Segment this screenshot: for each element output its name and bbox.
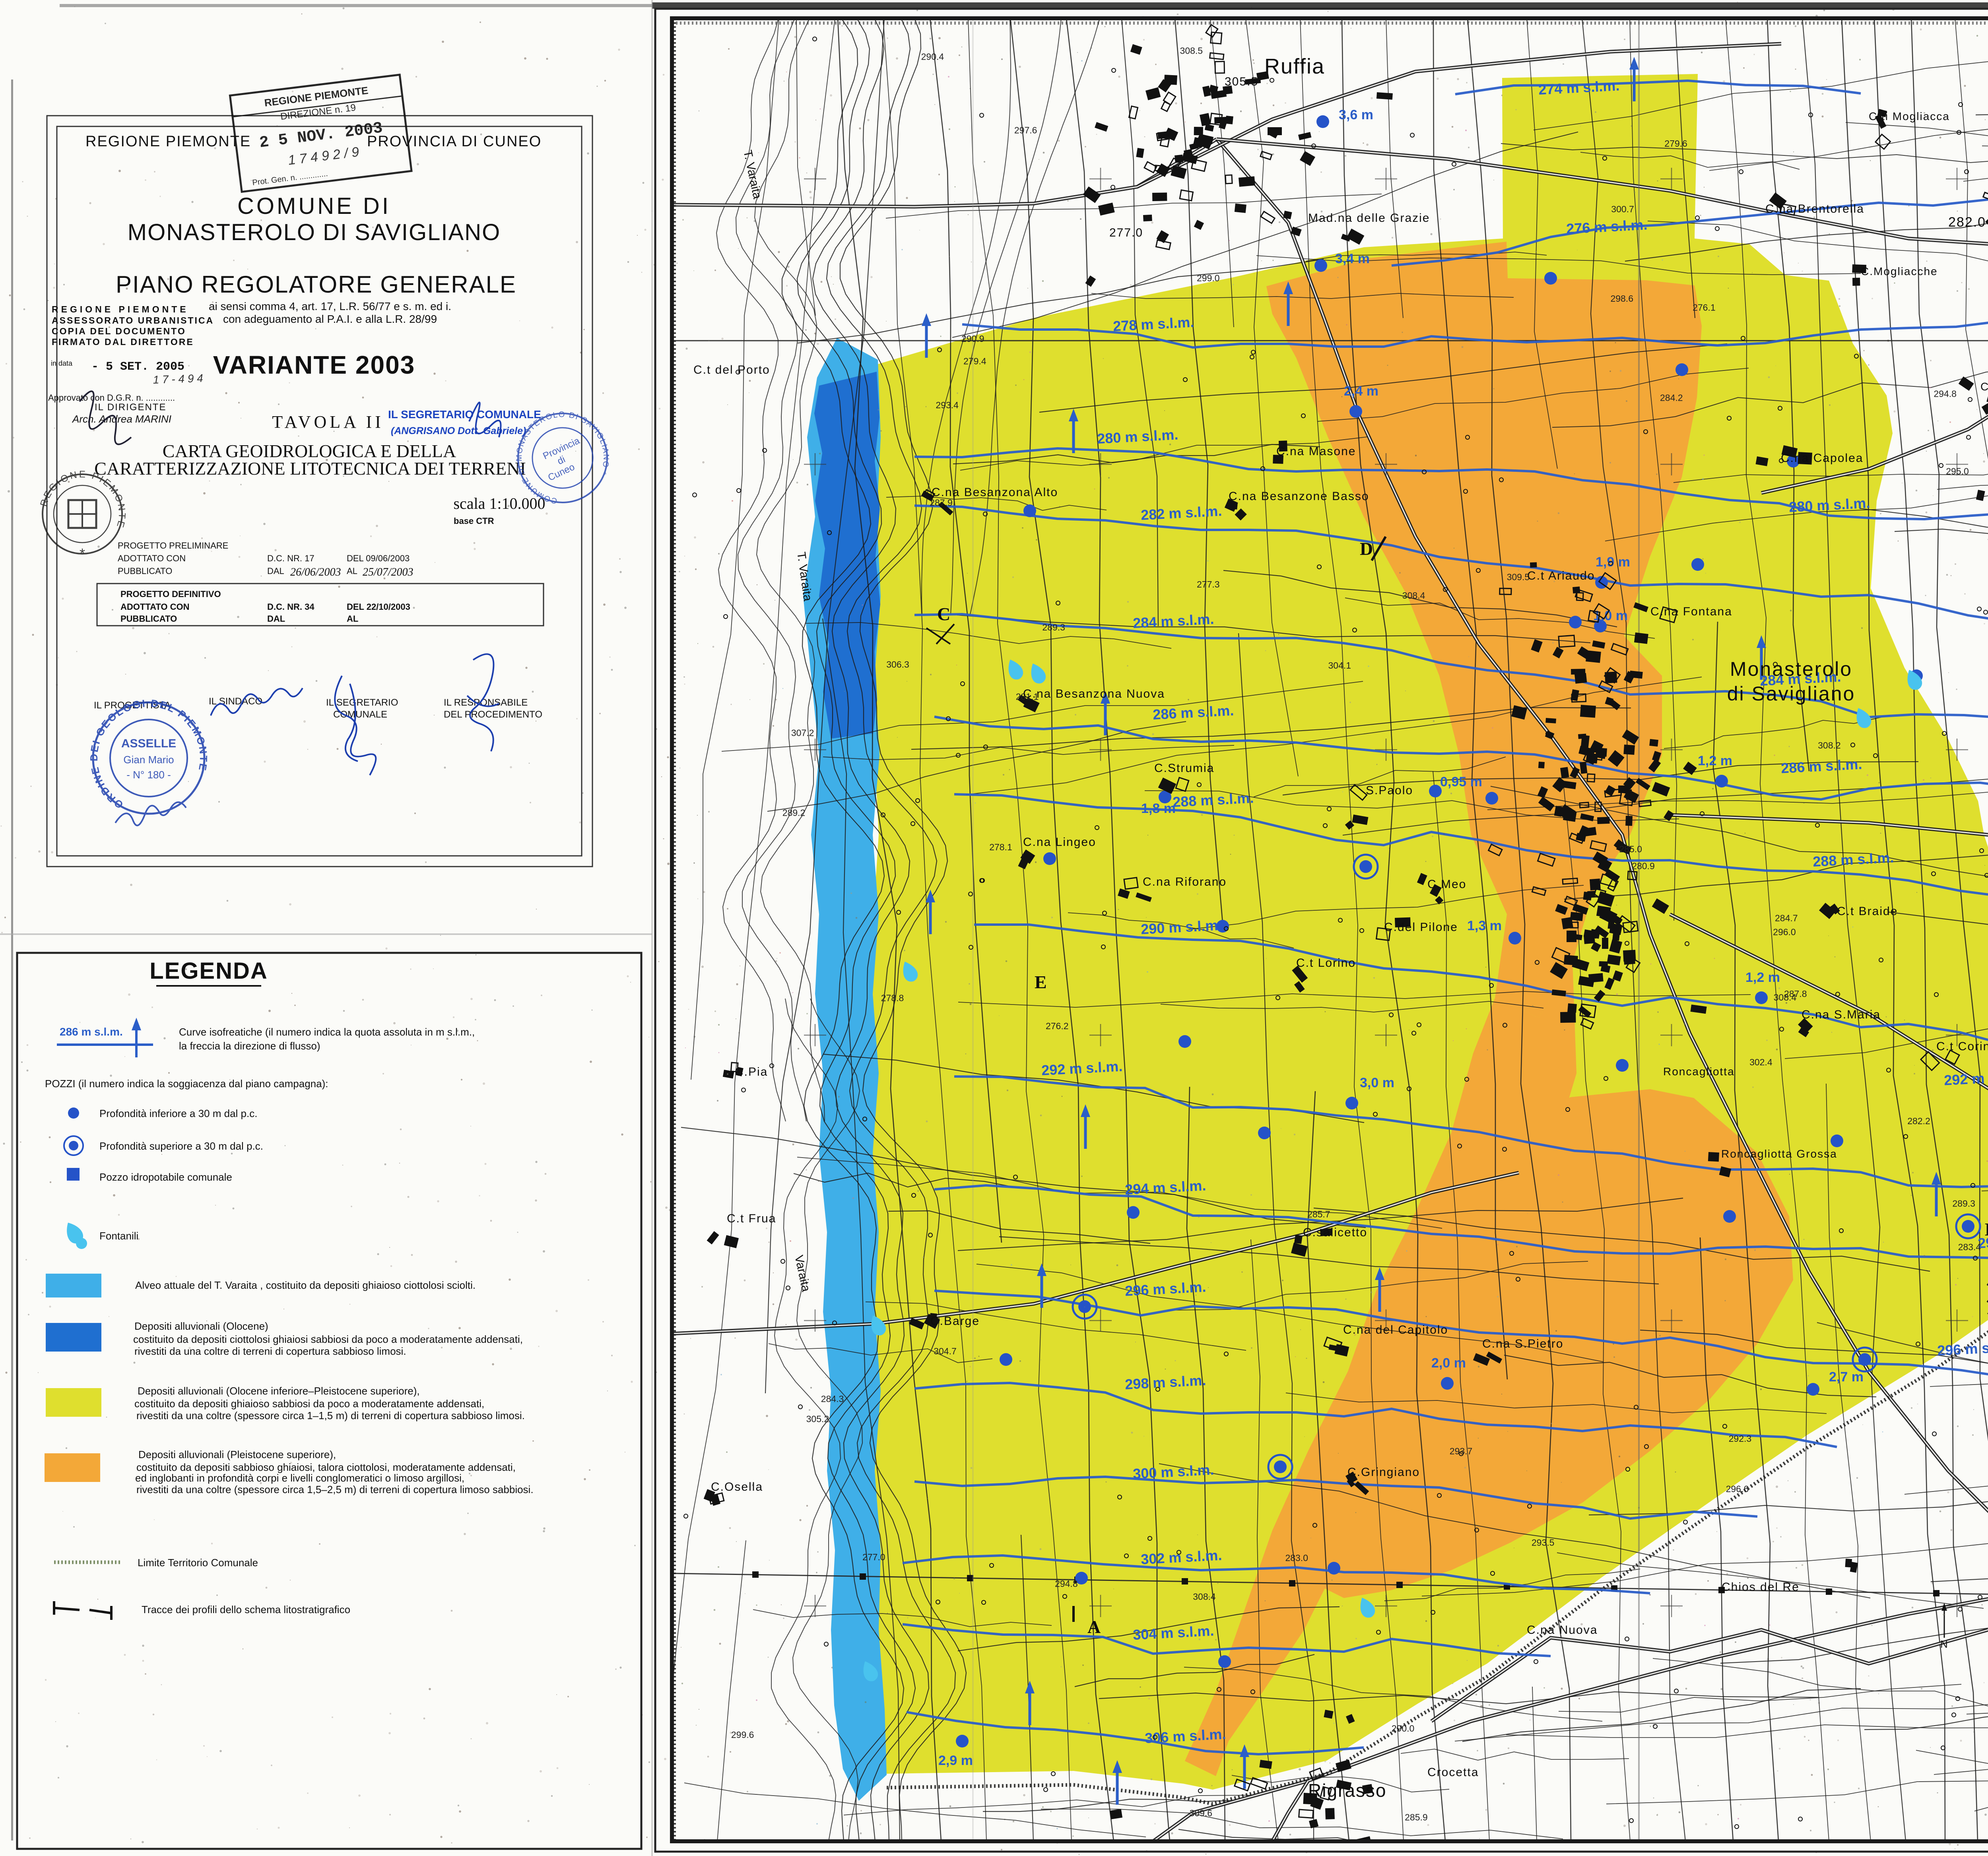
svg-text:290.0: 290.0: [1392, 1723, 1415, 1734]
svg-text:283.4: 283.4: [1958, 1242, 1981, 1252]
svg-text:279.4: 279.4: [963, 356, 986, 367]
svg-text:ADOTTATO CON: ADOTTATO CON: [118, 553, 186, 563]
svg-text:279.6: 279.6: [1664, 138, 1687, 149]
svg-text:3,0 m: 3,0 m: [1360, 1075, 1394, 1090]
svg-text:C.na S.Maria: C.na S.Maria: [1802, 1008, 1881, 1021]
svg-text:304.7: 304.7: [934, 1346, 957, 1356]
svg-text:287.9: 287.9: [930, 498, 953, 508]
svg-text:C.Meo: C.Meo: [1427, 878, 1466, 891]
svg-text:1,2 m: 1,2 m: [1745, 970, 1780, 985]
svg-text:DEL 22/10/2003: DEL 22/10/2003: [347, 602, 410, 612]
svg-text:285.0: 285.0: [1619, 844, 1642, 854]
svg-text:284.3: 284.3: [821, 1394, 844, 1404]
svg-text:282.0: 282.0: [1948, 215, 1986, 230]
svg-text:C.na Besanzone Basso: C.na Besanzone Basso: [1229, 490, 1369, 503]
svg-text:C.na Brentorella: C.na Brentorella: [1765, 202, 1864, 215]
svg-text:TAVOLA II: TAVOLA II: [272, 412, 384, 432]
svg-text:283.0: 283.0: [1285, 1553, 1308, 1563]
svg-text:25/07/2003: 25/07/2003: [363, 566, 414, 578]
svg-text:DAL: DAL: [267, 614, 285, 624]
svg-text:C.na Capolea: C.na Capolea: [1781, 452, 1863, 465]
svg-text:Roncagliotta: Roncagliotta: [1663, 1065, 1735, 1078]
svg-text:277.0: 277.0: [1109, 226, 1143, 239]
svg-text:ASSELLE: ASSELLE: [121, 737, 176, 750]
svg-text:MONASTEROLO DI SAVIGLIANO: MONASTEROLO DI SAVIGLIANO: [128, 219, 501, 245]
svg-text:E: E: [1035, 972, 1047, 992]
svg-text:290.4: 290.4: [921, 51, 944, 62]
svg-text:VARIANTE 2003: VARIANTE 2003: [213, 351, 415, 379]
svg-text:306.3: 306.3: [886, 659, 909, 670]
svg-text:Depositi alluvionali (Olocene): Depositi alluvionali (Olocene): [134, 1320, 268, 1332]
svg-text:costituito da depositi ciott: costituito da depositi ciottolosi ghiaio…: [133, 1333, 523, 1345]
svg-text:PROGETTO PRELIMINARE: PROGETTO PRELIMINARE: [118, 541, 228, 551]
svg-text:ASSESSORATO URBANISTICA: ASSESSORATO URBANISTICA: [52, 315, 214, 326]
svg-text:C.Strumia: C.Strumia: [1154, 762, 1214, 775]
svg-text:299.6: 299.6: [731, 1730, 754, 1740]
svg-text:rivestiti da una coltre di ter: rivestiti da una coltre di terreni di co…: [134, 1345, 406, 1357]
svg-text:277.3: 277.3: [1197, 579, 1220, 590]
svg-text:C.Mogliacche: C.Mogliacche: [1861, 265, 1938, 277]
svg-text:308.4: 308.4: [1193, 1592, 1216, 1602]
svg-text:Ruffia: Ruffia: [1264, 54, 1325, 78]
svg-text:C.t Ariaudo: C.t Ariaudo: [1527, 569, 1595, 582]
svg-text:PROVINCIA DI CUNEO: PROVINCIA DI CUNEO: [367, 133, 542, 150]
svg-text:*: *: [80, 545, 85, 562]
svg-text:289.3: 289.3: [1952, 1198, 1975, 1208]
svg-text:D.C. NR. 17: D.C. NR. 17: [267, 553, 315, 563]
svg-text:294.8: 294.8: [1055, 1579, 1078, 1589]
svg-text:Rigrasso: Rigrasso: [1308, 1780, 1387, 1801]
svg-text:1,2 m: 1,2 m: [1698, 753, 1732, 768]
svg-text:DEL PROCEDIMENTO: DEL PROCEDIMENTO: [444, 709, 542, 720]
svg-text:309.6: 309.6: [1189, 1808, 1212, 1818]
svg-text:COPIA DEL DOCUMENTO: COPIA DEL DOCUMENTO: [52, 326, 186, 336]
svg-text:300.7: 300.7: [1611, 204, 1634, 214]
svg-text:C.salicetto: C.salicetto: [1303, 1226, 1367, 1239]
svg-text:Profondità inferiore a 30 m da: Profondità inferiore a 30 m dal p.c.: [99, 1107, 257, 1119]
svg-text:278.1: 278.1: [989, 842, 1012, 852]
svg-text:2 5 NOV. 2003: 2 5 NOV. 2003: [258, 119, 384, 152]
svg-text:Depositi alluvionali (Olocene: Depositi alluvionali (Olocene inferiore–…: [138, 1385, 420, 1397]
svg-text:280.9: 280.9: [1632, 861, 1655, 871]
svg-text:COMUNALE: COMUNALE: [333, 709, 387, 720]
svg-text:C.na Riforano: C.na Riforano: [1143, 875, 1227, 888]
svg-text:DEL 09/06/2003: DEL 09/06/2003: [347, 553, 410, 563]
svg-text:base CTR: base CTR: [454, 516, 494, 526]
svg-text:C.na del Capitolo: C.na del Capitolo: [1343, 1323, 1448, 1336]
svg-text:Pozzo idropotabile comunale: Pozzo idropotabile comunale: [99, 1171, 232, 1183]
svg-text:290.9: 290.9: [961, 334, 984, 344]
svg-text:IL DIRIGENTE: IL DIRIGENTE: [95, 402, 166, 413]
svg-text:285.9: 285.9: [1405, 1812, 1428, 1822]
svg-text:costituito da depositi sabbi: costituito da depositi sabbioso ghiaiosi…: [136, 1461, 516, 1473]
svg-text:294.8: 294.8: [1934, 389, 1957, 399]
svg-text:N: N: [1940, 1638, 1948, 1650]
svg-text:277.0: 277.0: [862, 1552, 885, 1562]
svg-text:PROGETTO DEFINITIVO: PROGETTO DEFINITIVO: [120, 589, 221, 599]
svg-text:C.ti Mogliacca: C.ti Mogliacca: [1869, 110, 1950, 122]
svg-text:3,6 m: 3,6 m: [1339, 107, 1373, 122]
svg-text:ADOTTATO CON: ADOTTATO CON: [120, 602, 190, 612]
svg-text:293.4: 293.4: [936, 400, 959, 410]
svg-text:26/06/2003: 26/06/2003: [290, 566, 341, 578]
svg-text:298.6: 298.6: [1610, 293, 1633, 304]
svg-text:C.na Besanzona Alto: C.na Besanzona Alto: [932, 486, 1058, 499]
svg-text:Gian Mario: Gian Mario: [123, 754, 174, 766]
svg-text:AL: AL: [347, 566, 357, 576]
svg-text:299.0: 299.0: [1197, 273, 1220, 283]
svg-text:PUBBLICATO: PUBBLICATO: [120, 614, 177, 624]
svg-text:Profondità superiore a 30 m da: Profondità superiore a 30 m dal p.c.: [99, 1140, 263, 1152]
svg-text:276.1: 276.1: [1693, 303, 1716, 313]
svg-text:293.7: 293.7: [1450, 1446, 1473, 1456]
svg-text:T. Varaita: T. Varaita: [741, 149, 764, 200]
svg-text:2,7 m: 2,7 m: [1829, 1369, 1864, 1385]
svg-text:in data: in data: [51, 359, 73, 367]
svg-text:284.2: 284.2: [1660, 393, 1683, 403]
svg-text:LEGENDA: LEGENDA: [149, 958, 268, 984]
svg-text:304.1: 304.1: [1328, 660, 1351, 671]
svg-text:297.6: 297.6: [1014, 125, 1037, 135]
svg-text:PUBBLICATO: PUBBLICATO: [118, 566, 172, 576]
svg-text:AL: AL: [347, 614, 358, 624]
svg-text:la freccia la direzione di flu: la freccia la direzione di flusso): [179, 1040, 320, 1052]
svg-text:C.Mogliacchi: C.Mogliacchi: [1980, 380, 1988, 393]
svg-text:305.2: 305.2: [806, 1414, 829, 1424]
svg-text:308.5: 308.5: [1180, 46, 1203, 56]
svg-text:Alveo attuale del T. Varaita ,: Alveo attuale del T. Varaita , costituit…: [135, 1279, 476, 1291]
svg-text:PIANO REGOLATORE GENERALE: PIANO REGOLATORE GENERALE: [116, 271, 516, 298]
svg-text:C.na Fontana: C.na Fontana: [1650, 605, 1732, 618]
svg-text:C.na Masone: C.na Masone: [1276, 445, 1356, 458]
svg-text:C.na Besanzona Nuova: C.na Besanzona Nuova: [1023, 687, 1165, 700]
svg-text:1 7 - 4 9 4: 1 7 - 4 9 4: [153, 372, 203, 386]
svg-text:(ANGRISANO Dott. Gabriele): (ANGRISANO Dott. Gabriele): [391, 425, 526, 436]
svg-text:Chios del Re: Chios del Re: [1722, 1581, 1800, 1594]
svg-text:289.3: 289.3: [1042, 622, 1065, 632]
svg-text:C.na Nuova: C.na Nuova: [1527, 1623, 1598, 1637]
svg-text:C.t del Porto: C.t del Porto: [693, 363, 770, 376]
svg-text:Crocetta: Crocetta: [1427, 1766, 1479, 1779]
svg-text:REGIONE PIEMONTE: REGIONE PIEMONTE: [85, 133, 251, 150]
svg-text:Limite Territorio Comunale: Limite Territorio Comunale: [138, 1557, 258, 1569]
svg-text:costituito da depositi ghiai: costituito da depositi ghiaioso sabbiosi…: [134, 1398, 484, 1410]
svg-text:Fontanili: Fontanili: [99, 1230, 138, 1242]
svg-text:Prot. Gen. n. .............: Prot. Gen. n. .............: [252, 169, 328, 187]
svg-text:Monasterolo: Monasterolo: [1730, 658, 1852, 680]
svg-text:FIRMATO DAL DIRETTORE: FIRMATO DAL DIRETTORE: [52, 337, 194, 347]
svg-text:309.5: 309.5: [1507, 572, 1530, 582]
svg-text:1,8 m: 1,8 m: [1141, 801, 1176, 816]
svg-text:scala 1:10.000: scala 1:10.000: [453, 495, 545, 512]
svg-text:C.Gringiano: C.Gringiano: [1347, 1466, 1420, 1479]
svg-text:307.2: 307.2: [791, 727, 814, 738]
svg-text:C.Osella: C.Osella: [711, 1480, 763, 1493]
svg-text:con adeguamento al P.A.I. e al: con adeguamento al P.A.I. e alla L.R. 28…: [223, 313, 437, 325]
svg-text:0,95 m: 0,95 m: [1440, 774, 1482, 789]
svg-text:296.6: 296.6: [1726, 1484, 1749, 1494]
svg-text:- 5 SET. 2005: - 5 SET. 2005: [91, 360, 184, 374]
svg-text:C.Pia: C.Pia: [735, 1065, 768, 1078]
svg-text:284.7: 284.7: [1775, 913, 1798, 923]
svg-text:1 7 4 9 2 / 9: 1 7 4 9 2 / 9: [287, 144, 360, 168]
svg-text:287.8: 287.8: [1784, 989, 1807, 999]
svg-text:278.8: 278.8: [881, 993, 904, 1003]
svg-text:rivestiti da una coltre (spess: rivestiti da una coltre (spessore circa …: [136, 1484, 534, 1495]
svg-text:ed inglobanti in profondità co: ed inglobanti in profondità corpi e live…: [135, 1472, 464, 1484]
svg-text:292.3: 292.3: [1729, 1433, 1752, 1444]
svg-text:ai sensi comma 4, art. 17, L.R: ai sensi comma 4, art. 17, L.R. 56/77 e …: [209, 300, 451, 312]
svg-text:- N° 180 -: - N° 180 -: [126, 769, 171, 781]
svg-text:295.0: 295.0: [1946, 466, 1969, 476]
svg-text:di Savigliano: di Savigliano: [1727, 683, 1856, 705]
svg-text:C.t Corino: C.t Corino: [1936, 1040, 1988, 1053]
svg-text:COMUNE DI: COMUNE DI: [237, 193, 391, 219]
svg-text:C.t Lorino: C.t Lorino: [1296, 956, 1356, 970]
svg-text:Roncagliotta Grossa: Roncagliotta Grossa: [1721, 1148, 1837, 1160]
svg-text:282.2: 282.2: [1907, 1116, 1930, 1126]
svg-text:296.0: 296.0: [1773, 927, 1796, 937]
svg-text:293.5: 293.5: [1532, 1538, 1555, 1548]
svg-text:1,9 m: 1,9 m: [1596, 555, 1630, 570]
svg-text:2,4 m: 2,4 m: [1344, 384, 1378, 399]
svg-text:REGIONE PIEMONTE: REGIONE PIEMONTE: [52, 304, 189, 314]
svg-text:2,9 m: 2,9 m: [938, 1753, 973, 1768]
svg-text:IL SEGRETARIO COMUNALE: IL SEGRETARIO COMUNALE: [388, 408, 541, 421]
svg-text:D.C. NR. 34: D.C. NR. 34: [267, 602, 315, 612]
svg-text:2,0 m: 2,0 m: [1431, 1356, 1466, 1371]
svg-text:C.na S.Pietro: C.na S.Pietro: [1482, 1337, 1563, 1350]
svg-text:C.t Braide: C.t Braide: [1837, 905, 1898, 918]
svg-text:1,3 m: 1,3 m: [1467, 918, 1502, 933]
svg-text:286 m s.l.m.: 286 m s.l.m.: [60, 1026, 123, 1038]
svg-text:rivestiti da una coltre (spess: rivestiti da una coltre (spessore circa …: [136, 1410, 525, 1422]
svg-text:308.4: 308.4: [1402, 590, 1425, 601]
svg-text:Mad.na delle Grazie: Mad.na delle Grazie: [1308, 211, 1430, 225]
svg-text:D: D: [1360, 539, 1373, 559]
svg-text:305.5: 305.5: [1225, 75, 1258, 88]
svg-text:276.2: 276.2: [1046, 1021, 1069, 1031]
svg-text:B: B: [1985, 1219, 1988, 1239]
svg-text:3,4 m: 3,4 m: [1335, 251, 1370, 266]
svg-text:C.na Lingeo: C.na Lingeo: [1023, 836, 1096, 849]
svg-text:Arch. Andrea MARINI: Arch. Andrea MARINI: [72, 413, 171, 425]
svg-text:C.Barge: C.Barge: [930, 1315, 980, 1328]
svg-text:CARATTERIZZAZIONE LITOTECNICA: CARATTERIZZAZIONE LITOTECNICA DEI TERREN…: [94, 458, 526, 479]
svg-text:Tracce dei profili dello schem: Tracce dei profili dello schema litostra…: [142, 1604, 350, 1616]
svg-text:Curve isofreatiche (il numero: Curve isofreatiche (il numero indica la …: [179, 1026, 475, 1038]
svg-text:308.2: 308.2: [1818, 740, 1841, 751]
svg-text:POZZI (il numero indica la so: POZZI (il numero indica la soggiacenza d…: [45, 1078, 328, 1090]
svg-text:289.2: 289.2: [782, 808, 806, 818]
svg-text:A: A: [1087, 1617, 1101, 1637]
svg-text:302.4: 302.4: [1749, 1057, 1773, 1067]
svg-text:C: C: [937, 604, 950, 624]
svg-text:285.7: 285.7: [1307, 1209, 1330, 1219]
svg-text:S.Paolo: S.Paolo: [1366, 784, 1413, 797]
svg-text:Varaita: Varaita: [792, 1254, 813, 1293]
svg-text:Approvato con D.G.R. n. ......: Approvato con D.G.R. n. ............: [48, 393, 175, 403]
svg-text:C.t Frua: C.t Frua: [727, 1212, 776, 1225]
svg-text:DAL: DAL: [267, 566, 284, 576]
svg-text:Depositi alluvionali (Pleistoc: Depositi alluvionali (Pleistocene superi…: [138, 1449, 336, 1460]
svg-text:C.del Pilone: C.del Pilone: [1384, 921, 1458, 934]
